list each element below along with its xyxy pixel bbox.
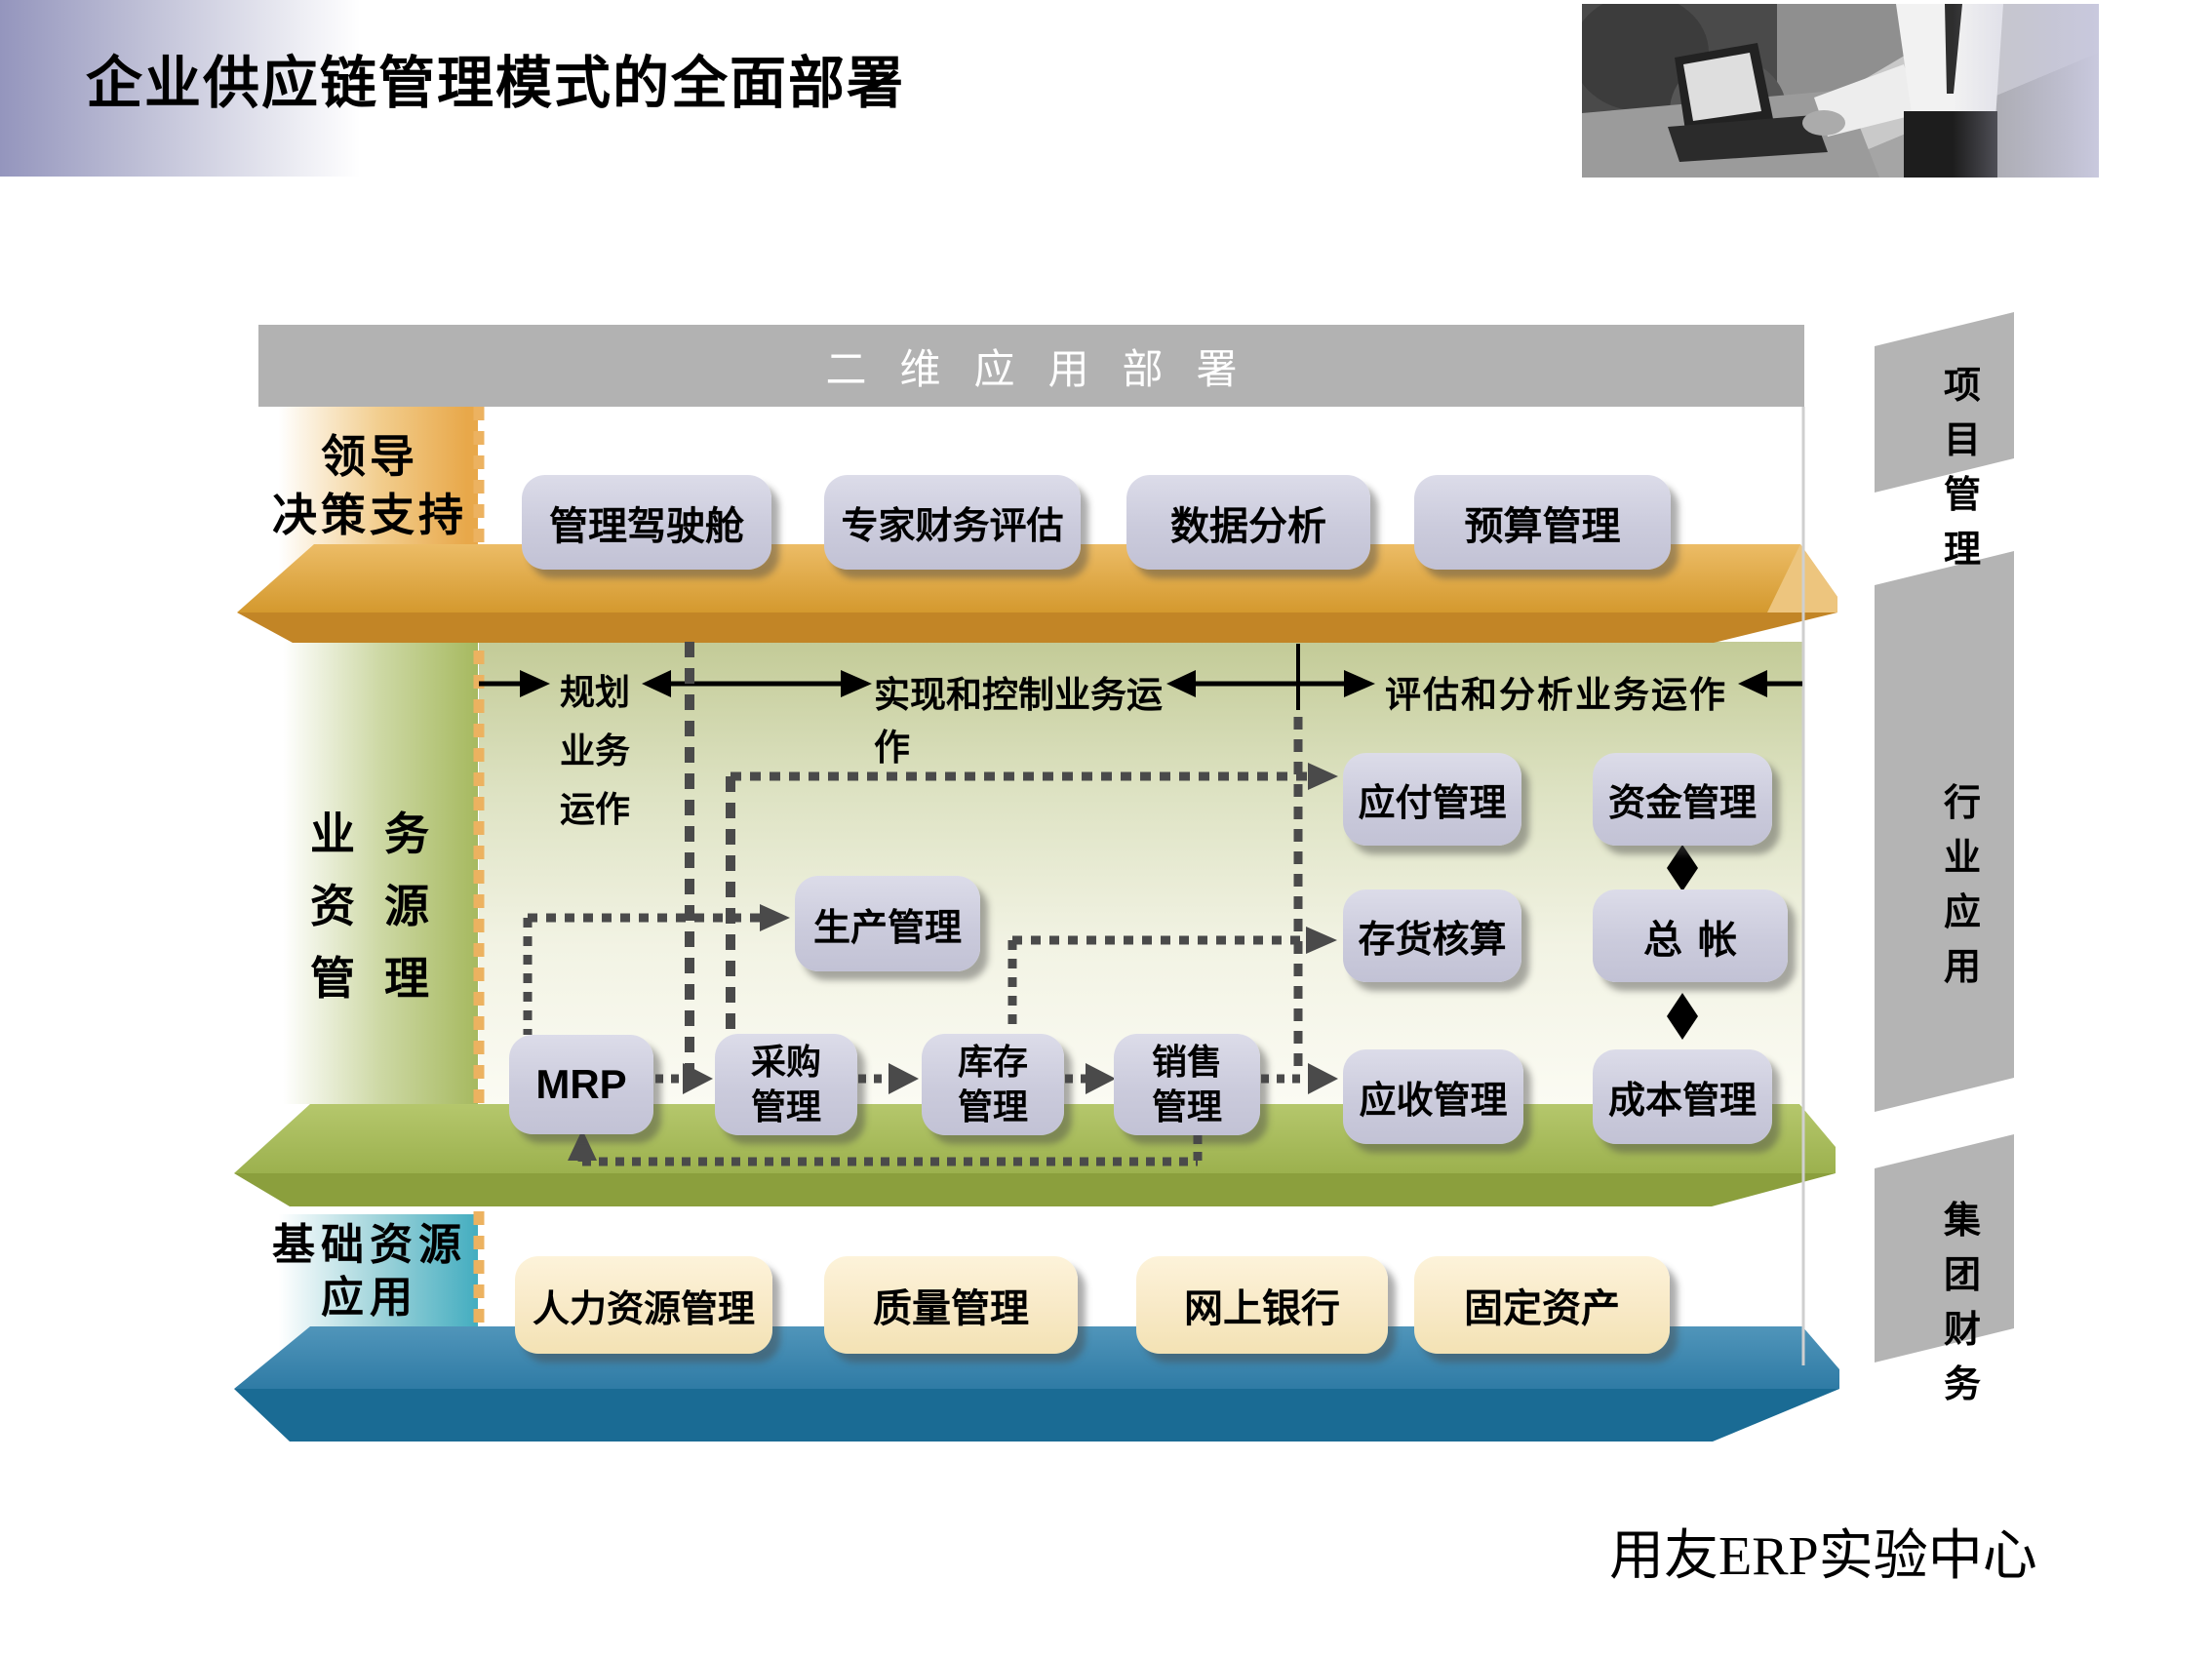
footer-text: 用友ERP实验中心 bbox=[1609, 1512, 2058, 1591]
top-bar: 二维应用部署 bbox=[258, 325, 1804, 407]
box-mrp: MRP bbox=[509, 1035, 653, 1134]
box-quality-management: 质量管理 bbox=[824, 1256, 1078, 1354]
panel-label-group-finance: 集团 财务 bbox=[1880, 1194, 2044, 1412]
slide: 企业供应链管理模式的全面部署 bbox=[0, 0, 2212, 1659]
box-online-banking: 网上银行 bbox=[1136, 1256, 1388, 1354]
top-bar-label: 二维应用部署 bbox=[792, 336, 1270, 396]
rail-label-foundation: 基础资源 应用 bbox=[261, 1219, 478, 1324]
box-data-analysis: 数据分析 bbox=[1126, 475, 1370, 570]
box-receivable-management: 应收管理 bbox=[1343, 1049, 1523, 1144]
box-payable-management: 应付管理 bbox=[1343, 753, 1521, 846]
panel-label-industry: 行业 应用 bbox=[1880, 776, 2044, 995]
rail-label-leadership: 领导 决策支持 bbox=[261, 427, 478, 544]
box-general-ledger: 总帐 bbox=[1593, 889, 1788, 982]
box-budget-management: 预算管理 bbox=[1414, 475, 1671, 570]
box-expert-financial-evaluation: 专家财务评估 bbox=[824, 475, 1081, 570]
box-inventory-accounting: 存货核算 bbox=[1343, 889, 1521, 982]
rail-label-business: 业务 资源 管理 bbox=[261, 798, 478, 1014]
box-purchase-management: 采购 管理 bbox=[715, 1034, 857, 1135]
flow-label-plan: 规划 业务 运作 bbox=[548, 663, 642, 839]
flow-label-execute: 实现和控制业务运作 bbox=[874, 665, 1166, 770]
flow-label-evaluate: 评估和分析业务运作 bbox=[1385, 665, 1744, 718]
box-inventory-management: 库存 管理 bbox=[922, 1034, 1064, 1135]
box-sales-management: 销售 管理 bbox=[1114, 1034, 1260, 1135]
box-production-management: 生产管理 bbox=[795, 876, 980, 971]
box-funds-management: 资金管理 bbox=[1593, 753, 1772, 846]
box-management-cockpit: 管理驾驶舱 bbox=[522, 475, 771, 570]
box-fixed-assets: 固定资产 bbox=[1414, 1256, 1670, 1354]
box-hr-management: 人力资源管理 bbox=[515, 1256, 772, 1354]
panel-label-project: 项目 管理 bbox=[1880, 359, 2044, 577]
box-cost-management: 成本管理 bbox=[1593, 1049, 1772, 1144]
